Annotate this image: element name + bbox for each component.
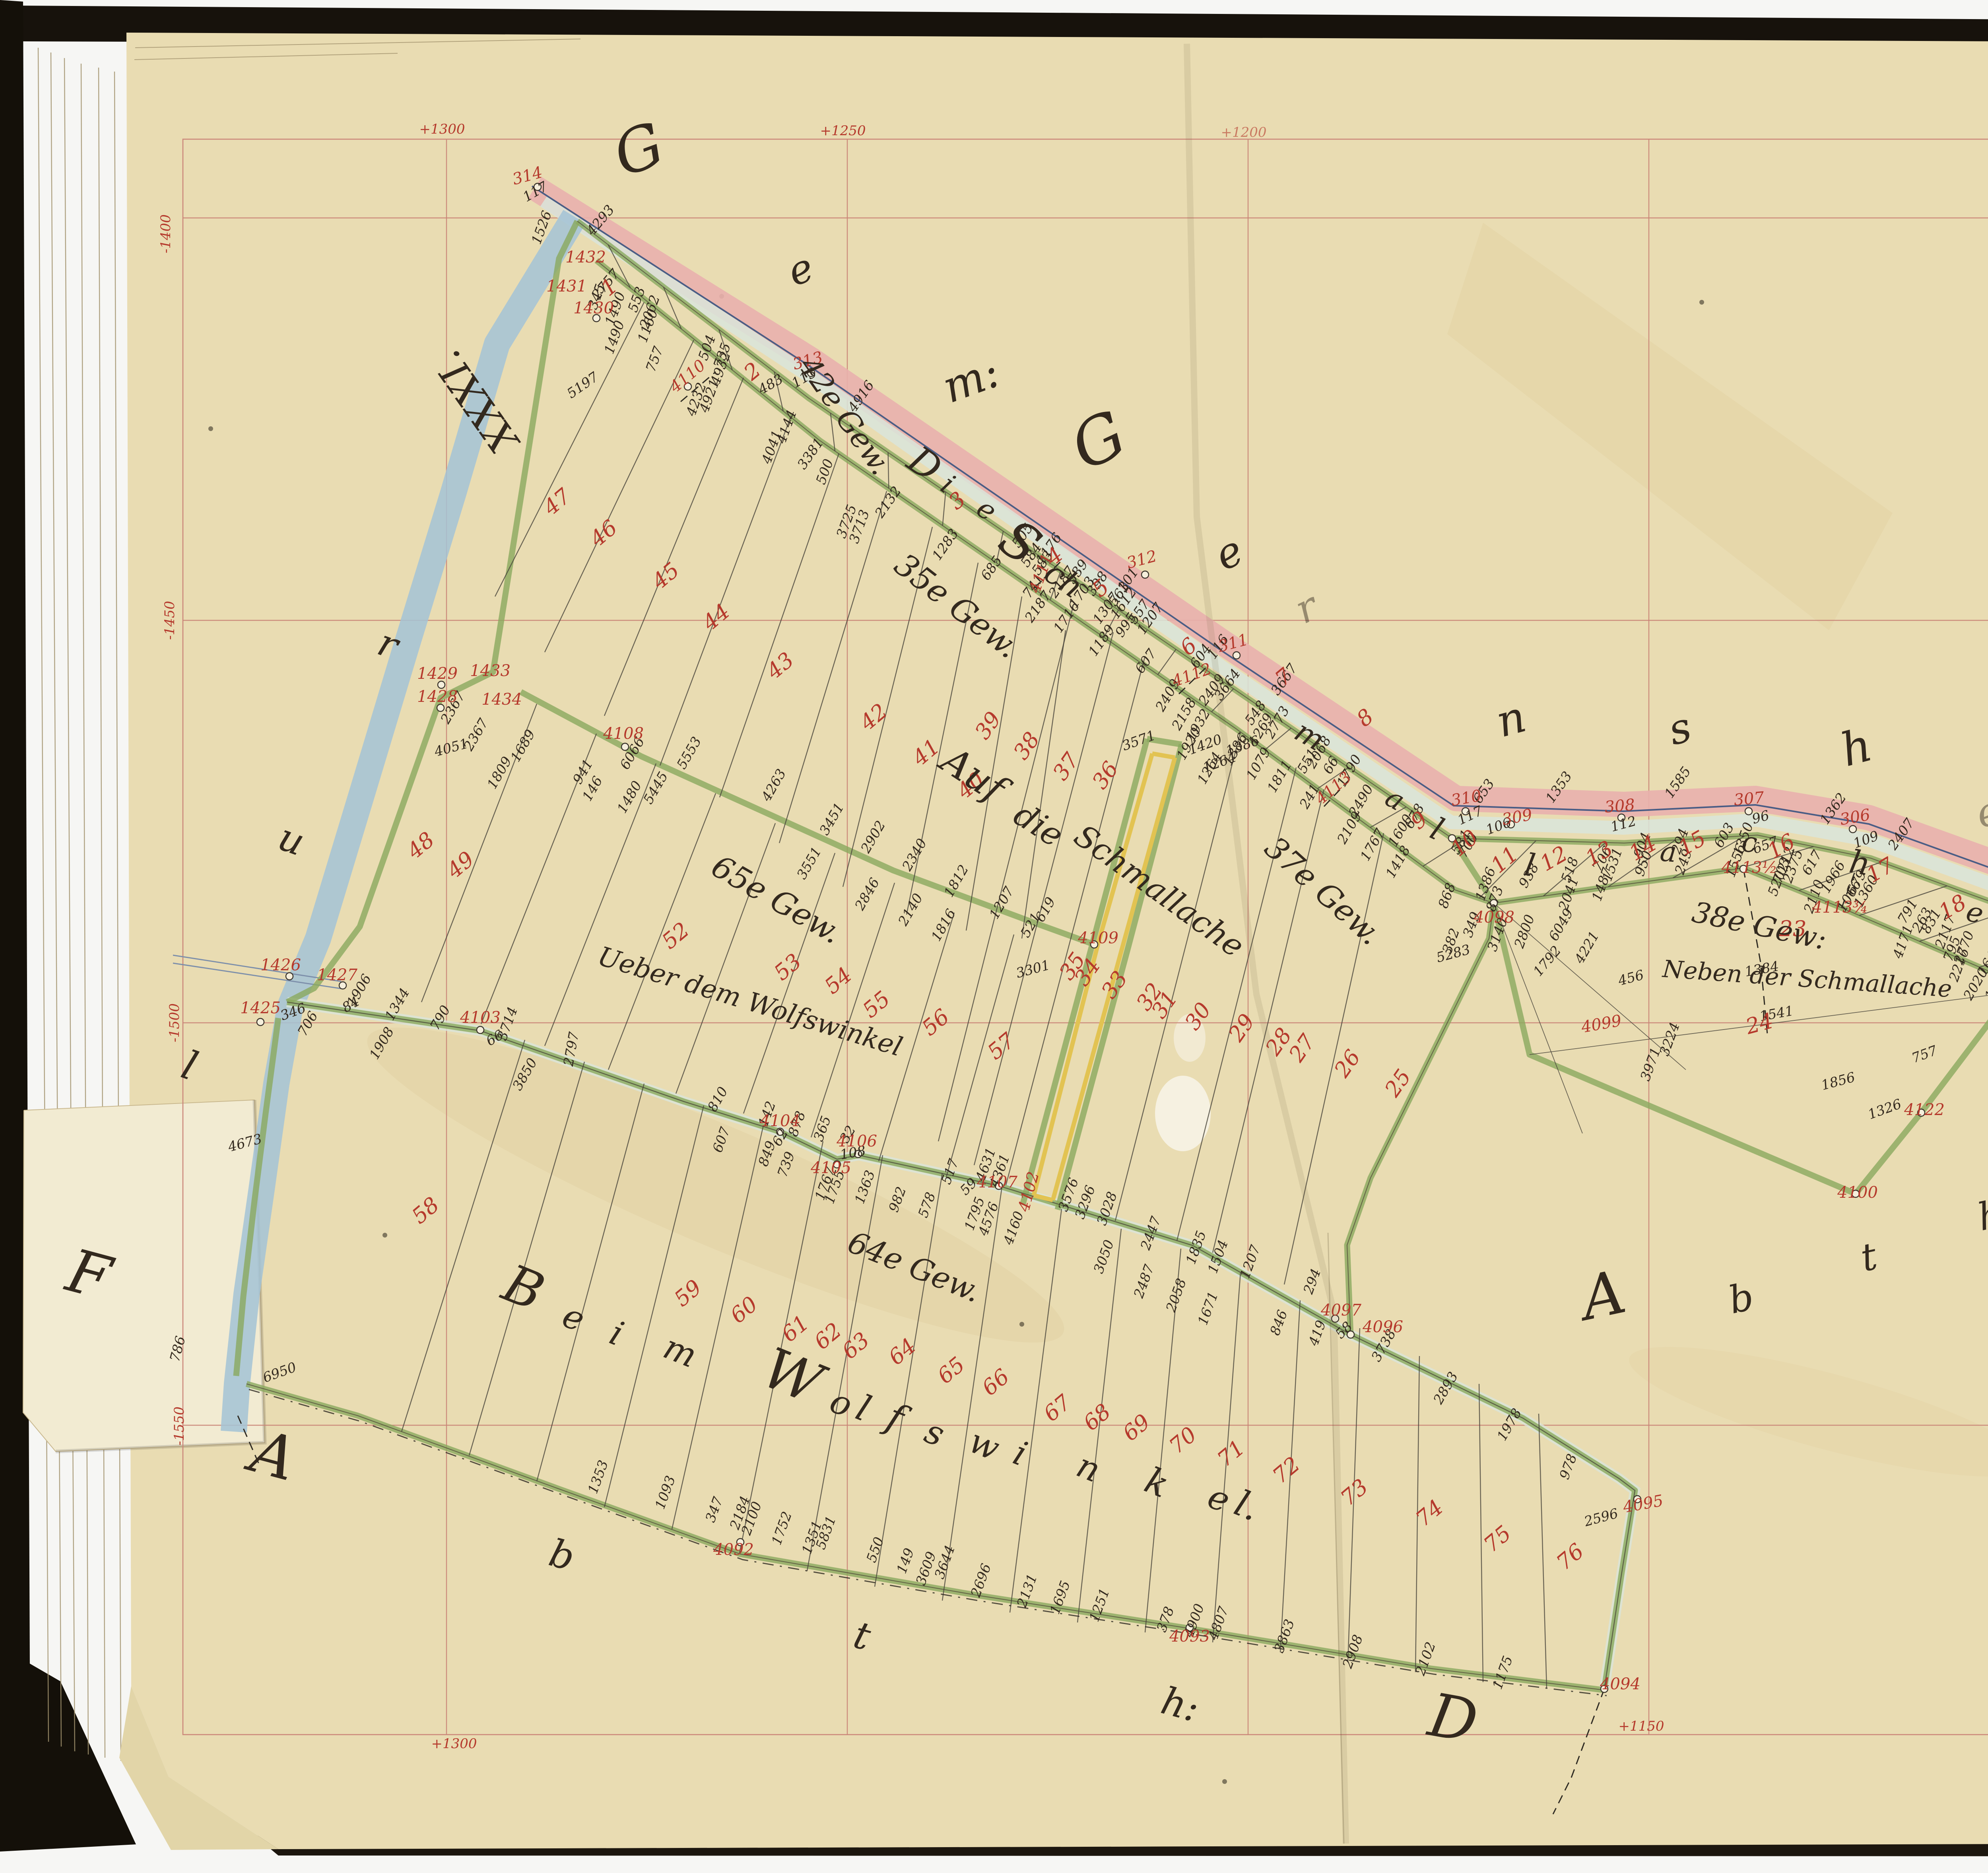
spread-letter: c bbox=[1740, 826, 1759, 859]
grid-coordinate: -1500 bbox=[167, 1003, 182, 1042]
cadastral-map-sheet: 1171526429334527571490553206211601490757… bbox=[0, 0, 1988, 1873]
map-page bbox=[126, 33, 1988, 1849]
boundary-point-number: 4106 bbox=[836, 1132, 877, 1150]
boundary-point-number: 4098 bbox=[1474, 908, 1514, 927]
boundary-point-number: 1425 bbox=[240, 999, 281, 1017]
spread-letter: a bbox=[1659, 835, 1678, 868]
boundary-point-number: 1426 bbox=[260, 956, 301, 974]
boundary-point-number: 4100 bbox=[1837, 1183, 1878, 1202]
grid-coordinate: -1550 bbox=[171, 1407, 187, 1446]
boundary-point-number: 4108 bbox=[603, 725, 644, 743]
grid-coordinate: -1450 bbox=[162, 601, 178, 640]
boundary-point-number: 4092 bbox=[713, 1541, 754, 1559]
scanned-atlas-photo: 1171526429334527571490553206211601490757… bbox=[0, 0, 1988, 1873]
boundary-point-number: 307 bbox=[1733, 789, 1765, 810]
boundary-point-number: 4093 bbox=[1169, 1627, 1210, 1646]
grid-coordinate: +1200 bbox=[1221, 124, 1266, 140]
boundary-point-number: 4113¾ bbox=[1812, 898, 1868, 917]
boundary-point-number: 4105 bbox=[810, 1159, 851, 1177]
boundary-point-number: 4094 bbox=[1600, 1675, 1640, 1693]
boundary-point-number: 1432 bbox=[565, 248, 606, 266]
grid-coordinate: +1300 bbox=[419, 121, 465, 137]
grid-coordinate: +1300 bbox=[431, 1736, 477, 1752]
boundary-point-number: 1431 bbox=[546, 277, 587, 295]
boundary-point-number: 1429 bbox=[417, 664, 458, 683]
grid-coordinate: +1250 bbox=[820, 123, 866, 139]
boundary-point-number: 1434 bbox=[481, 690, 522, 709]
boundary-point-number: 4103 bbox=[460, 1008, 501, 1027]
boundary-point-number: 1430 bbox=[573, 299, 614, 317]
boundary-point-number: 4113½ bbox=[1721, 859, 1778, 877]
grid-coordinate: -1400 bbox=[158, 214, 174, 253]
boundary-point-number: 4122 bbox=[1904, 1101, 1945, 1119]
boundary-point-number: 4107 bbox=[977, 1173, 1017, 1191]
boundary-point-number: 1433 bbox=[470, 662, 511, 680]
boundary-point-number: 4104 bbox=[759, 1112, 800, 1130]
boundary-point-number: 4096 bbox=[1362, 1318, 1403, 1336]
boundary-point-number: 1428 bbox=[417, 688, 458, 706]
boundary-point-number: 1427 bbox=[317, 966, 357, 984]
grid-coordinate: +1150 bbox=[1618, 1718, 1664, 1734]
boundary-point-number: 308 bbox=[1604, 796, 1636, 816]
boundary-point-number: 4109 bbox=[1077, 929, 1118, 947]
boundary-point-number: 4097 bbox=[1320, 1301, 1361, 1319]
